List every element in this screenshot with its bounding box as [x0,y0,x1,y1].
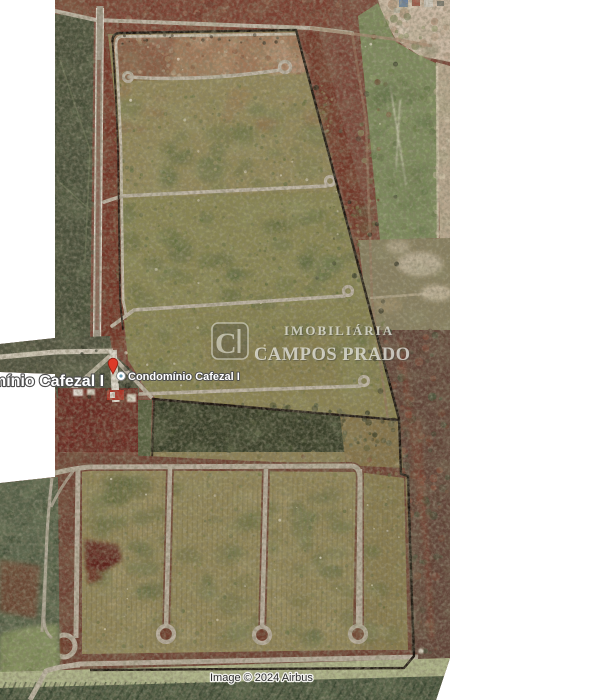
svg-text:Condomínio Cafezal I: Condomínio Cafezal I [128,371,240,383]
svg-text:C: C [215,327,237,360]
svg-text:Image © 2024 Airbus: Image © 2024 Airbus [210,672,313,684]
svg-text:mínio Cafezal I: mínio Cafezal I [0,373,104,390]
svg-text:CAMPOS PRADO: CAMPOS PRADO [254,345,411,365]
svg-text:IMOBILIÁRIA: IMOBILIÁRIA [284,323,394,338]
